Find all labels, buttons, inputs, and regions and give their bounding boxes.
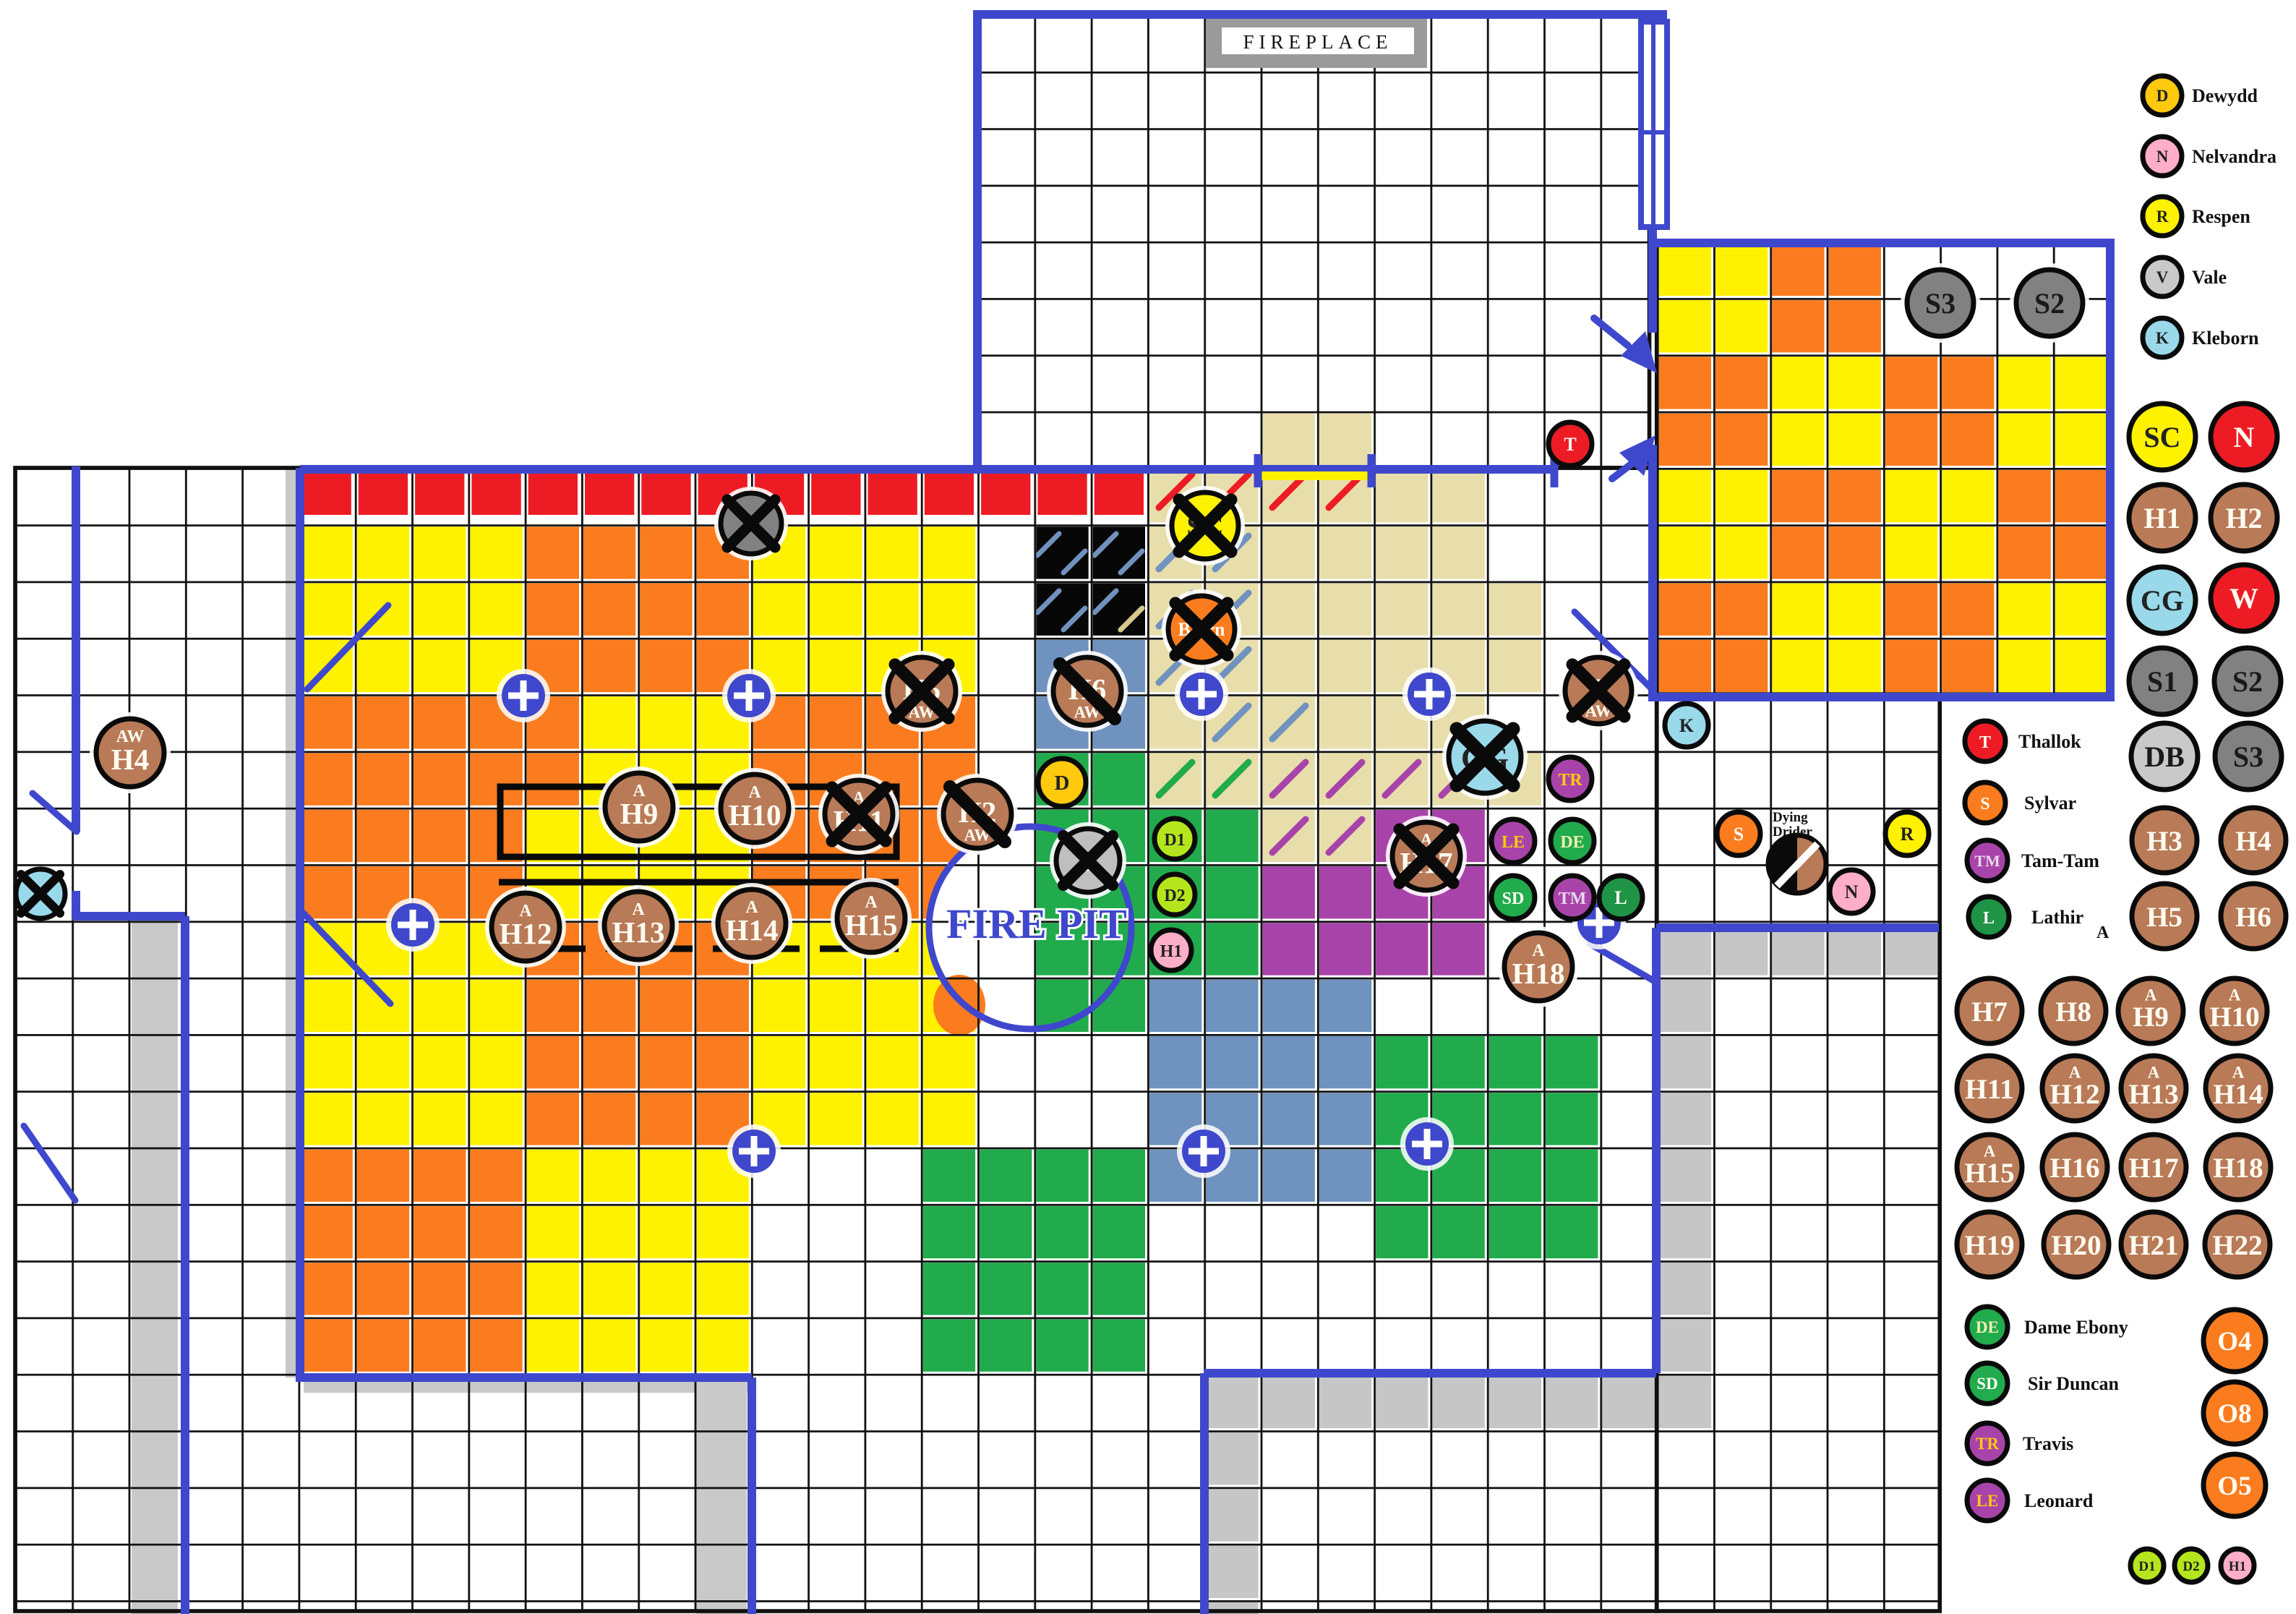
svg-text:TM: TM [1559, 889, 1587, 908]
svg-text:H7: H7 [1971, 996, 2008, 1028]
svg-text:N: N [2234, 421, 2255, 453]
svg-text:H1: H1 [2229, 1559, 2246, 1574]
svg-text:S: S [1980, 795, 1989, 814]
svg-text:D2: D2 [2183, 1559, 2199, 1574]
svg-text:D2: D2 [1164, 887, 1185, 905]
svg-text:H9: H9 [2133, 1002, 2169, 1033]
svg-text:Dewydd: Dewydd [2192, 85, 2258, 106]
svg-text:H9: H9 [620, 797, 658, 830]
svg-text:H2: H2 [2225, 502, 2262, 534]
svg-text:H21: H21 [2128, 1230, 2178, 1261]
svg-text:DB: DB [2144, 740, 2185, 773]
svg-text:DE: DE [1976, 1318, 1999, 1336]
svg-text:D1: D1 [1164, 831, 1185, 850]
svg-text:LE: LE [1976, 1492, 1999, 1510]
svg-text:H8: H8 [2055, 996, 2091, 1028]
svg-text:H18: H18 [2213, 1153, 2263, 1184]
svg-text:Sir Duncan: Sir Duncan [2028, 1373, 2119, 1394]
svg-text:D: D [1055, 772, 1070, 795]
svg-text:N: N [1845, 881, 1859, 902]
svg-text:H4: H4 [2235, 826, 2271, 857]
svg-text:H16: H16 [2049, 1153, 2099, 1184]
svg-text:O4: O4 [2217, 1327, 2251, 1357]
svg-text:CG: CG [2141, 584, 2184, 617]
svg-text:H14: H14 [726, 913, 779, 947]
svg-text:R: R [1901, 824, 1914, 845]
svg-text:H1: H1 [1160, 942, 1183, 961]
svg-text:N: N [2156, 148, 2169, 166]
svg-text:H12: H12 [2049, 1079, 2099, 1110]
svg-text:H10: H10 [2209, 1002, 2259, 1033]
svg-text:TR: TR [1976, 1435, 1999, 1453]
svg-text:O5: O5 [2217, 1472, 2251, 1501]
svg-text:H3: H3 [2146, 826, 2183, 857]
svg-text:D1: D1 [2138, 1559, 2155, 1574]
svg-text:TR: TR [1558, 771, 1582, 790]
svg-text:T: T [1979, 733, 1991, 752]
svg-text:H14: H14 [2213, 1079, 2263, 1110]
svg-text:V: V [2156, 268, 2169, 286]
svg-text:H15: H15 [845, 908, 898, 941]
svg-text:Nelvandra: Nelvandra [2192, 146, 2276, 167]
svg-text:L: L [1983, 909, 1995, 928]
svg-text:H15: H15 [1964, 1158, 2014, 1189]
svg-text:Kleborn: Kleborn [2192, 328, 2259, 349]
svg-text:H20: H20 [2051, 1230, 2101, 1261]
svg-text:O8: O8 [2217, 1399, 2251, 1429]
svg-text:S3: S3 [1925, 287, 1956, 320]
svg-text:H6: H6 [2235, 902, 2271, 933]
svg-text:TM: TM [1974, 852, 2000, 870]
svg-text:Leonard: Leonard [2024, 1490, 2094, 1511]
svg-text:H19: H19 [1964, 1230, 2014, 1261]
svg-text:Drider: Drider [1773, 824, 1812, 840]
svg-text:SD: SD [1502, 889, 1525, 908]
svg-text:Dying: Dying [1773, 810, 1808, 825]
svg-text:Travis: Travis [2023, 1433, 2073, 1454]
svg-text:H1: H1 [2143, 502, 2180, 534]
svg-text:SD: SD [1976, 1375, 1997, 1393]
svg-text:H22: H22 [2212, 1230, 2262, 1261]
svg-text:Tam-Tam: Tam-Tam [2021, 850, 2099, 871]
svg-text:S2: S2 [2232, 665, 2263, 698]
svg-text:A: A [2096, 923, 2109, 942]
svg-text:H12: H12 [500, 917, 552, 950]
svg-text:DE: DE [1560, 833, 1584, 852]
svg-text:FIRE PIT: FIRE PIT [946, 900, 1127, 947]
svg-text:S2: S2 [2034, 287, 2065, 320]
svg-text:SC: SC [2143, 421, 2180, 453]
svg-text:S1: S1 [2147, 665, 2177, 698]
svg-text:H5: H5 [2146, 902, 2183, 933]
svg-text:LE: LE [1502, 833, 1525, 852]
svg-text:Lathir: Lathir [2031, 907, 2083, 928]
svg-text:H13: H13 [2128, 1079, 2178, 1110]
svg-text:H18: H18 [1512, 957, 1565, 990]
svg-text:W: W [2229, 582, 2258, 615]
svg-text:H10: H10 [729, 798, 781, 832]
svg-text:L: L [1614, 887, 1627, 908]
svg-text:FIREPLACE: FIREPLACE [1243, 31, 1392, 53]
svg-text:S: S [1734, 824, 1744, 845]
svg-text:D: D [2156, 87, 2169, 105]
svg-text:K: K [2156, 329, 2169, 347]
svg-text:H4: H4 [111, 743, 149, 776]
svg-text:Sylvar: Sylvar [2024, 793, 2076, 814]
svg-text:Vale: Vale [2192, 267, 2227, 288]
svg-text:H17: H17 [2128, 1153, 2178, 1184]
svg-text:T: T [1564, 434, 1576, 455]
svg-text:H11: H11 [1965, 1074, 2013, 1105]
svg-text:Thallok: Thallok [2018, 731, 2081, 752]
svg-text:H13: H13 [612, 915, 665, 949]
svg-text:S3: S3 [2233, 740, 2263, 773]
svg-text:R: R [2156, 208, 2169, 226]
svg-text:K: K [1679, 715, 1695, 736]
svg-text:Respen: Respen [2192, 206, 2250, 227]
svg-text:Dame Ebony: Dame Ebony [2024, 1317, 2128, 1338]
